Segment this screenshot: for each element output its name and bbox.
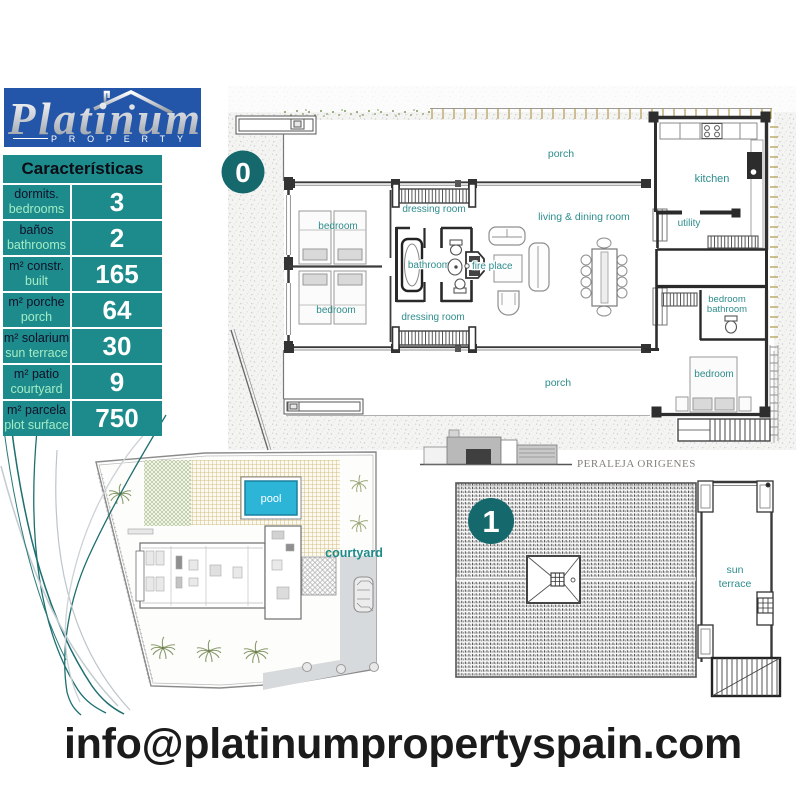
svg-text:dressing room: dressing room bbox=[402, 204, 465, 215]
svg-text:kitchen: kitchen bbox=[695, 173, 730, 185]
svg-text:0: 0 bbox=[235, 157, 251, 188]
svg-text:dressing room: dressing room bbox=[401, 312, 464, 323]
svg-text:sun: sun bbox=[727, 564, 744, 576]
svg-text:living & dining room: living & dining room bbox=[538, 211, 630, 223]
svg-text:utility: utility bbox=[678, 218, 701, 229]
svg-text:porch: porch bbox=[545, 377, 571, 389]
svg-text:bathroom: bathroom bbox=[707, 304, 747, 315]
svg-text:1: 1 bbox=[482, 504, 499, 539]
svg-text:PROPERTY: PROPERTY bbox=[51, 134, 195, 144]
svg-text:terrace: terrace bbox=[719, 578, 752, 590]
svg-text:courtyard: courtyard bbox=[325, 546, 383, 560]
svg-text:bathroom: bathroom bbox=[408, 260, 450, 271]
svg-text:bedroom: bedroom bbox=[316, 305, 355, 316]
svg-text:porch: porch bbox=[548, 148, 574, 160]
svg-text:pool: pool bbox=[261, 493, 282, 505]
svg-text:bedroom: bedroom bbox=[318, 221, 357, 232]
svg-text:bedroom: bedroom bbox=[694, 369, 733, 380]
svg-text:fire place: fire place bbox=[472, 261, 513, 272]
svg-text:PERALEJA ORIGENES: PERALEJA ORIGENES bbox=[577, 458, 696, 470]
